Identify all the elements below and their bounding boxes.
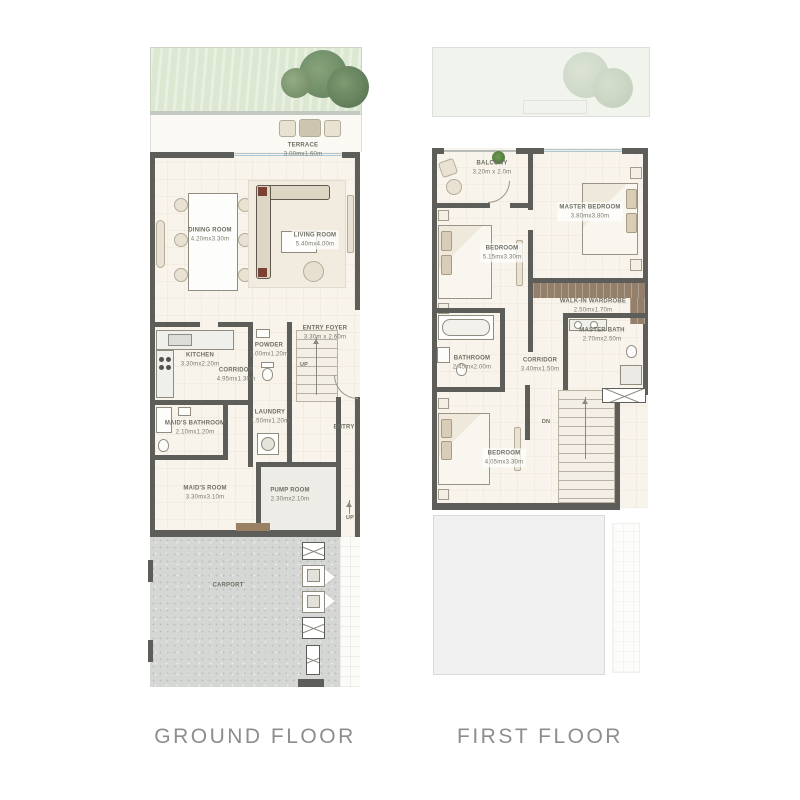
wall [150, 455, 228, 460]
pouf-icon [303, 261, 324, 282]
wall [150, 400, 252, 405]
utility-box-icon [302, 542, 325, 560]
tree-icon [327, 66, 369, 108]
nightstand-icon [438, 210, 449, 221]
closet-box-icon [602, 388, 646, 403]
walkway-up-arrow-icon [349, 500, 350, 514]
ghost-carport-outline [433, 515, 605, 675]
room-label-entry: ENTRY [333, 424, 354, 433]
ground-floor-plan: TERRACE3.00mx1.60m DINING ROOM4.20mx3.30… [148, 45, 362, 690]
garden-area [150, 47, 362, 115]
room-label-walk-in-wardrobe: WALK-IN WARDROBE2.50mx1.70m [560, 297, 626, 314]
dining-chair-icon [174, 198, 188, 212]
entry-sideboard-icon [236, 523, 270, 531]
terrace-armchair-icon [279, 120, 296, 137]
stairs-down [558, 390, 615, 503]
wall-right [355, 397, 360, 537]
first-floor-plan: BALCONY3.20m x 2.0m MASTER BEDROOM3.80mx… [430, 45, 650, 690]
room-label-carport: CARPORT [212, 582, 243, 591]
room-label-laundry: LAUNDRY1.50mx1.20m [251, 408, 290, 425]
floorplan-sheet: TERRACE3.00mx1.60m DINING ROOM4.20mx3.30… [0, 0, 800, 800]
room-label-pump-room: PUMP ROOM2.30mx2.10m [270, 486, 309, 503]
wall [500, 308, 505, 392]
wardrobe-icon [630, 298, 645, 324]
room-label-maids-room: MAID'S ROOM3.30mx3.10m [183, 484, 226, 501]
pillow-icon [626, 213, 637, 233]
wall-left [150, 152, 155, 537]
stairs-up-label: UP [300, 362, 308, 368]
wall-bottom [532, 503, 620, 510]
pillow-icon [441, 419, 452, 438]
terrace-armchair-icon [324, 120, 341, 137]
room-label-bathroom: BATHROOM2.45mx2.00m [453, 354, 492, 371]
wall-bottom [150, 530, 340, 537]
sideboard-icon [156, 220, 165, 268]
wall-stub [298, 679, 324, 687]
room-label-terrace: TERRACE3.00mx1.60m [284, 141, 323, 158]
wall [563, 313, 568, 390]
ghost-walkway [612, 523, 640, 673]
room-label-powder: POWDER2.00mx1.20m [250, 341, 289, 358]
utility-box-icon [302, 617, 325, 639]
wall [432, 203, 490, 208]
hob-burner-icon [166, 365, 171, 370]
pillow-icon [626, 189, 637, 209]
toilet-bowl-icon [158, 439, 169, 452]
wall [432, 308, 504, 313]
washer-drum-icon [261, 437, 275, 451]
meter-box-icon [307, 595, 320, 608]
wall-stub [148, 640, 153, 662]
dining-chair-icon [174, 233, 188, 247]
room-label-balcony: BALCONY3.20m x 2.0m [473, 159, 512, 176]
ghost-tree-icon [593, 68, 633, 108]
room-label-corridor: CORRIDOR3.40mx1.50m [521, 356, 560, 373]
room-label-master-bath: MASTER BATH2.70mx2.50m [579, 326, 624, 343]
room-label-bedroom-2: BEDROOM4.05mx3.30m [483, 448, 526, 467]
nightstand-icon [630, 167, 642, 179]
nightstand-icon [438, 398, 449, 409]
nightstand-icon [630, 259, 642, 271]
sofa-cushion-icon [258, 268, 267, 277]
utility-box-icon [306, 645, 320, 675]
wall [218, 322, 252, 327]
wall-right [355, 152, 360, 310]
wall [525, 385, 530, 440]
room-label-dining: DINING ROOM4.20mx3.30m [188, 226, 232, 243]
wall [150, 152, 234, 158]
terrace-table-icon [299, 119, 321, 137]
wall-right [643, 148, 648, 395]
stairs-up-arrow-icon [316, 337, 317, 395]
ghost-terrace-outline [523, 100, 587, 114]
stairs-down-label: DN [542, 419, 550, 425]
wall [248, 322, 253, 405]
wall [256, 462, 336, 467]
wall [256, 462, 261, 530]
nightstand-icon [438, 489, 449, 500]
room-label-living: LIVING ROOM5.40mx4.00m [292, 230, 339, 249]
walkway-up-label: UP [346, 515, 354, 521]
pillow-icon [441, 441, 452, 460]
ghost-garden-area [432, 47, 650, 117]
bath-sink-icon [178, 407, 191, 416]
wall [432, 387, 505, 392]
hob-burner-icon [166, 357, 171, 362]
first-floor-title: FIRST FLOOR [430, 725, 650, 749]
sofa-icon [256, 185, 271, 279]
bath-sink-icon [437, 347, 450, 363]
hob-burner-icon [159, 357, 164, 362]
toilet-bowl-icon [626, 345, 637, 358]
sofa-cushion-icon [258, 187, 267, 196]
pillow-icon [441, 255, 452, 275]
stairs-arrow-icon [585, 397, 586, 459]
powder-sink-icon [256, 329, 270, 338]
wall-bottom [432, 503, 532, 510]
room-label-master-bedroom: MASTER BEDROOM3.80mx3.80m [557, 202, 622, 221]
meter-box-icon [307, 569, 320, 582]
wardrobe-icon [533, 283, 645, 298]
room-label-entry-foyer: ENTRY FOYER3.30m x 2.60m [303, 324, 348, 341]
wall [287, 322, 292, 405]
toilet-bowl-icon [262, 368, 273, 381]
wall [615, 388, 620, 508]
wall-stub [148, 560, 153, 582]
wall [528, 148, 533, 210]
tv-console-icon [347, 195, 354, 253]
balcony-rail [444, 150, 516, 152]
tree-icon [281, 68, 311, 98]
bathtub-inner-icon [442, 319, 490, 336]
wall [150, 322, 200, 327]
kitchen-sink-icon [168, 334, 192, 346]
wall-left [432, 148, 437, 508]
bedroom-window [544, 149, 622, 152]
room-label-corridor: CORRIDOR4.95mx1.30m [217, 366, 256, 383]
hob-burner-icon [159, 365, 164, 370]
shower-icon [620, 365, 642, 385]
room-label-kitchen: KITCHEN3.30mx2.20m [181, 351, 220, 368]
ground-floor-title: GROUND FLOOR [148, 725, 362, 749]
room-label-bedroom-1: BEDROOM5.15mx3.30m [481, 243, 524, 262]
side-walkway [340, 537, 360, 687]
dining-chair-icon [174, 268, 188, 282]
pillow-icon [441, 231, 452, 251]
balcony-table-icon [446, 179, 462, 195]
room-label-maids-bathroom: MAID'S BATHROOM2.10mx1.20m [165, 419, 225, 436]
wall [336, 397, 341, 537]
